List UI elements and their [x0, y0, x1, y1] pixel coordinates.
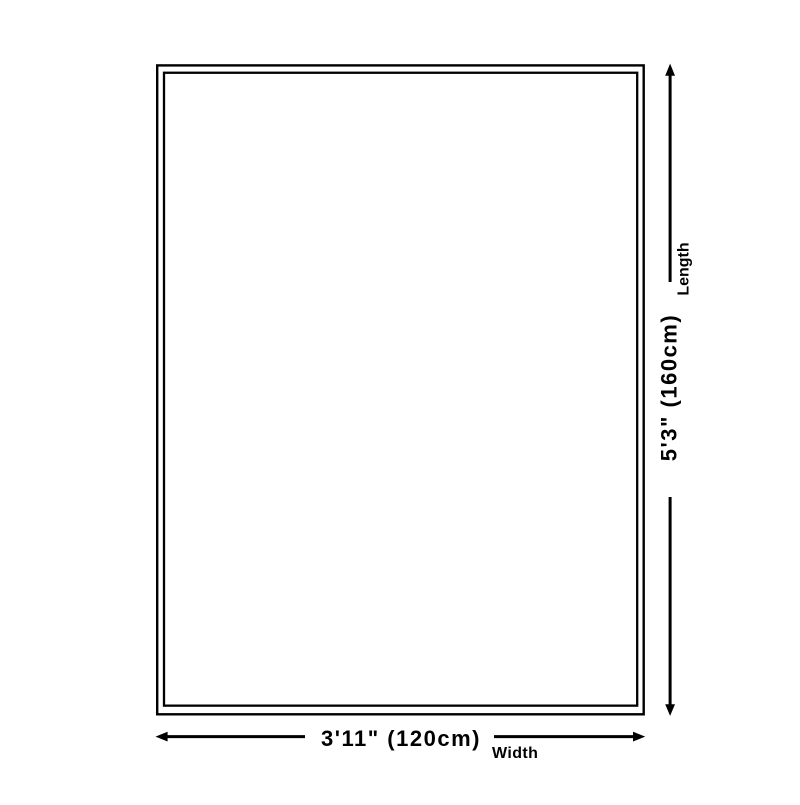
svg-text:Width: Width — [492, 745, 538, 762]
svg-text:3'11" (120cm): 3'11" (120cm) — [321, 726, 481, 751]
svg-text:5'3" (160cm): 5'3" (160cm) — [657, 314, 682, 461]
svg-text:Length: Length — [676, 242, 693, 295]
